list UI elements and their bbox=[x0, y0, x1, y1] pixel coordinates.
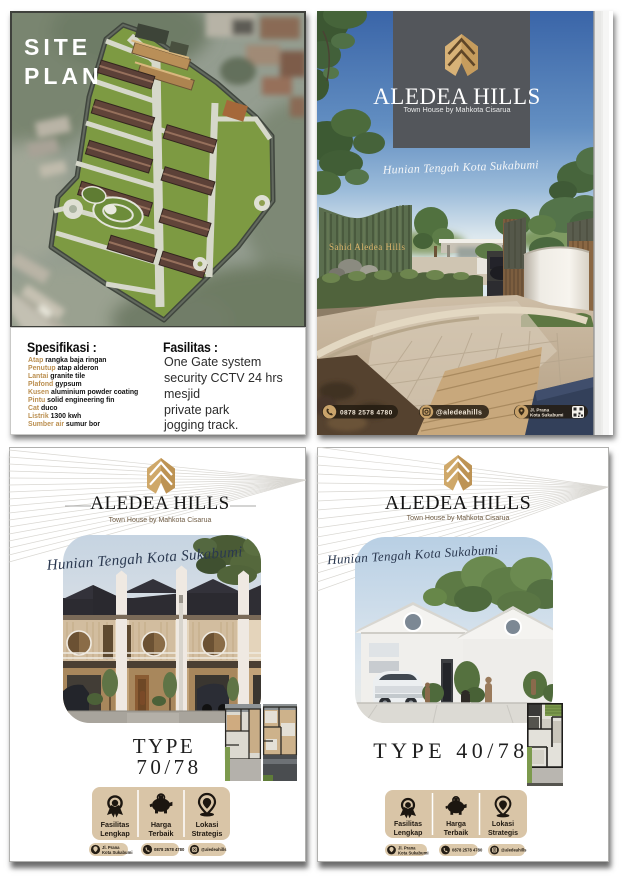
svg-text:Lengkap: Lengkap bbox=[394, 830, 423, 837]
svg-text:Atap rangka baja ringan: Atap rangka baja ringan bbox=[28, 357, 107, 364]
svg-text:Penutup atap alderon: Penutup atap alderon bbox=[28, 365, 98, 372]
svg-text:Terbaik: Terbaik bbox=[148, 829, 173, 838]
svg-text:SITE: SITE bbox=[24, 34, 91, 60]
svg-text:Strategis: Strategis bbox=[192, 829, 223, 838]
svg-text:Fasilitas: Fasilitas bbox=[101, 820, 130, 829]
svg-text:0878 2578 4780: 0878 2578 4780 bbox=[340, 410, 393, 417]
svg-text:Lantai granite tile: Lantai granite tile bbox=[28, 373, 85, 380]
svg-text:Lokasi: Lokasi bbox=[492, 821, 514, 828]
svg-text:PLAN: PLAN bbox=[24, 63, 103, 89]
svg-text:@aledeahills: @aledeahills bbox=[436, 410, 482, 417]
svg-text:Plafond gypsum: Plafond gypsum bbox=[28, 381, 82, 388]
svg-text:mesjid: mesjid bbox=[164, 387, 200, 401]
svg-text:@aledeahills: @aledeahills bbox=[201, 847, 227, 852]
svg-text:Lokasi: Lokasi bbox=[196, 820, 219, 829]
svg-text:TYPE 40/78: TYPE 40/78 bbox=[373, 738, 529, 763]
svg-text:0878 2578 4780: 0878 2578 4780 bbox=[154, 847, 185, 852]
svg-text:Fasilitas :: Fasilitas : bbox=[163, 339, 218, 355]
svg-text:Kota Sukabumi: Kota Sukabumi bbox=[102, 850, 132, 855]
svg-text:Spesifikasi :: Spesifikasi : bbox=[27, 339, 97, 355]
svg-text:Town House by Mahkota Cisarua: Town House by Mahkota Cisarua bbox=[403, 105, 511, 114]
svg-text:Sahid Aledea Hills: Sahid Aledea Hills bbox=[329, 242, 406, 252]
svg-text:ALEDEA HILLS: ALEDEA HILLS bbox=[90, 493, 230, 514]
svg-text:@aledeahills: @aledeahills bbox=[501, 848, 527, 853]
svg-text:Harga: Harga bbox=[446, 821, 466, 828]
svg-text:Kusen aluminium powder coating: Kusen aluminium powder coating bbox=[28, 389, 138, 396]
svg-text:private park: private park bbox=[164, 403, 230, 417]
svg-text:One Gate system: One Gate system bbox=[164, 355, 261, 369]
svg-text:Town House by Mahkota Cisarua: Town House by Mahkota Cisarua bbox=[109, 517, 212, 524]
svg-text:security CCTV 24 hrs: security CCTV 24 hrs bbox=[164, 371, 283, 385]
svg-text:Terbaik: Terbaik bbox=[444, 830, 468, 837]
svg-text:Sumber air sumur bor: Sumber air sumur bor bbox=[28, 421, 100, 428]
svg-text:Town House by Mahkota Cisarua: Town House by Mahkota Cisarua bbox=[407, 515, 510, 522]
svg-text:Kota Sukabumi: Kota Sukabumi bbox=[530, 413, 563, 418]
svg-text:0878 2578 4780: 0878 2578 4780 bbox=[452, 848, 483, 853]
svg-text:Cat duco: Cat duco bbox=[28, 405, 58, 412]
svg-text:Listrik 1300 kwh: Listrik 1300 kwh bbox=[28, 413, 81, 420]
svg-text:jogging track.: jogging track. bbox=[163, 418, 238, 432]
svg-text:ALEDEA HILLS: ALEDEA HILLS bbox=[385, 492, 532, 514]
svg-text:70/78: 70/78 bbox=[136, 755, 201, 779]
svg-text:Lengkap: Lengkap bbox=[100, 829, 130, 838]
svg-text:Kota Sukabumi: Kota Sukabumi bbox=[398, 851, 428, 856]
svg-text:Harga: Harga bbox=[151, 820, 172, 829]
svg-text:Pintu solid engineering fin: Pintu solid engineering fin bbox=[28, 397, 115, 404]
svg-text:Strategis: Strategis bbox=[488, 830, 518, 837]
svg-text:Fasilitas: Fasilitas bbox=[394, 821, 422, 828]
